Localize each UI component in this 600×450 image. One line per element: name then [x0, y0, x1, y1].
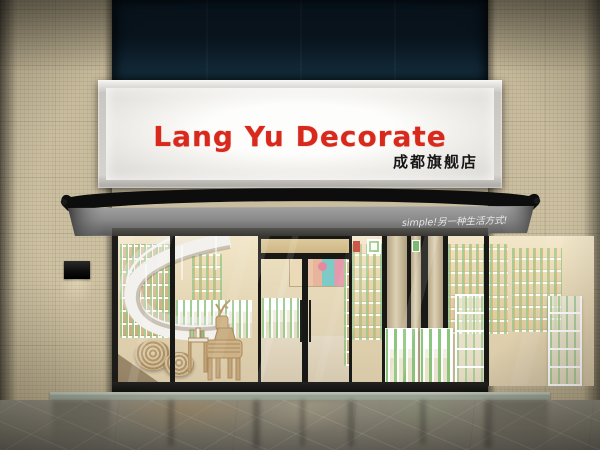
- left-display-window: [118, 236, 258, 386]
- entrance-door-left: [258, 256, 305, 386]
- sign-title: Lang Yu Decorate: [106, 120, 494, 153]
- window-mullion: [170, 236, 175, 386]
- mullion-reflection: [348, 400, 354, 446]
- wall-sconce-left: [64, 261, 90, 279]
- wall-sconce-left-glow: [58, 279, 96, 305]
- reindeer-leg: [216, 358, 220, 378]
- awning-right-curl: [534, 198, 540, 204]
- shelf-product: [196, 328, 200, 338]
- reindeer-side-shelf: [188, 338, 208, 342]
- framed-picture: [367, 239, 381, 254]
- storefront-scene: Lang Yu Decorate 成都旗舰店 simple!另一种生活方式!: [0, 0, 600, 450]
- pavement-floor: [0, 400, 600, 450]
- etagere-shelf: [548, 296, 582, 386]
- pillar-reflection: [52, 400, 110, 450]
- etagere-shelf: [455, 294, 487, 386]
- brand-sign-red: [353, 241, 360, 252]
- reindeer-antlers: [216, 300, 230, 318]
- mullion-reflection: [300, 400, 305, 446]
- sign-subtitle: 成都旗舰店: [393, 151, 478, 172]
- door-transom-panel: [258, 236, 352, 256]
- brand-sign-green: [412, 240, 420, 252]
- awning-left-curl: [61, 199, 67, 205]
- display-cabinet: [385, 328, 418, 386]
- reindeer-leg: [236, 358, 240, 380]
- entrance-section: [258, 236, 352, 386]
- floor-reflection-warm: [108, 402, 268, 436]
- shelf-leg: [188, 342, 191, 372]
- storefront-sill: [112, 382, 488, 392]
- door-handle-right: [309, 300, 311, 342]
- right-display-window: [352, 236, 594, 386]
- reindeer-leg: [208, 358, 212, 380]
- storefront-glazing: [112, 228, 488, 392]
- reindeer-torso: [206, 340, 242, 358]
- far-left-shadow: [0, 0, 26, 402]
- floor-reflection-door: [258, 402, 354, 432]
- reindeer-figure: [188, 298, 250, 382]
- sign-lightbox-face: Lang Yu Decorate 成都旗舰店: [106, 88, 494, 180]
- storefront-sign: Lang Yu Decorate 成都旗舰店: [98, 80, 502, 188]
- reindeer-leg: [228, 358, 232, 378]
- reindeer-body: [188, 300, 242, 380]
- entrance-door-right: [305, 256, 352, 386]
- wall-shelves-bay1: [352, 244, 382, 340]
- mullion-reflection: [253, 400, 260, 448]
- display-cabinet: [420, 328, 453, 386]
- shelf-leg: [204, 342, 207, 372]
- pillar-reflection: [490, 400, 548, 450]
- mullion-reflection: [168, 400, 174, 446]
- shelf-product: [201, 331, 204, 338]
- window-mullion: [484, 236, 489, 386]
- mullion-reflection: [420, 400, 426, 444]
- storefront-top-beam: [112, 228, 488, 236]
- shelf-product: [190, 330, 194, 338]
- door-handle-left: [300, 300, 302, 342]
- upper-facade-panel: [112, 0, 488, 84]
